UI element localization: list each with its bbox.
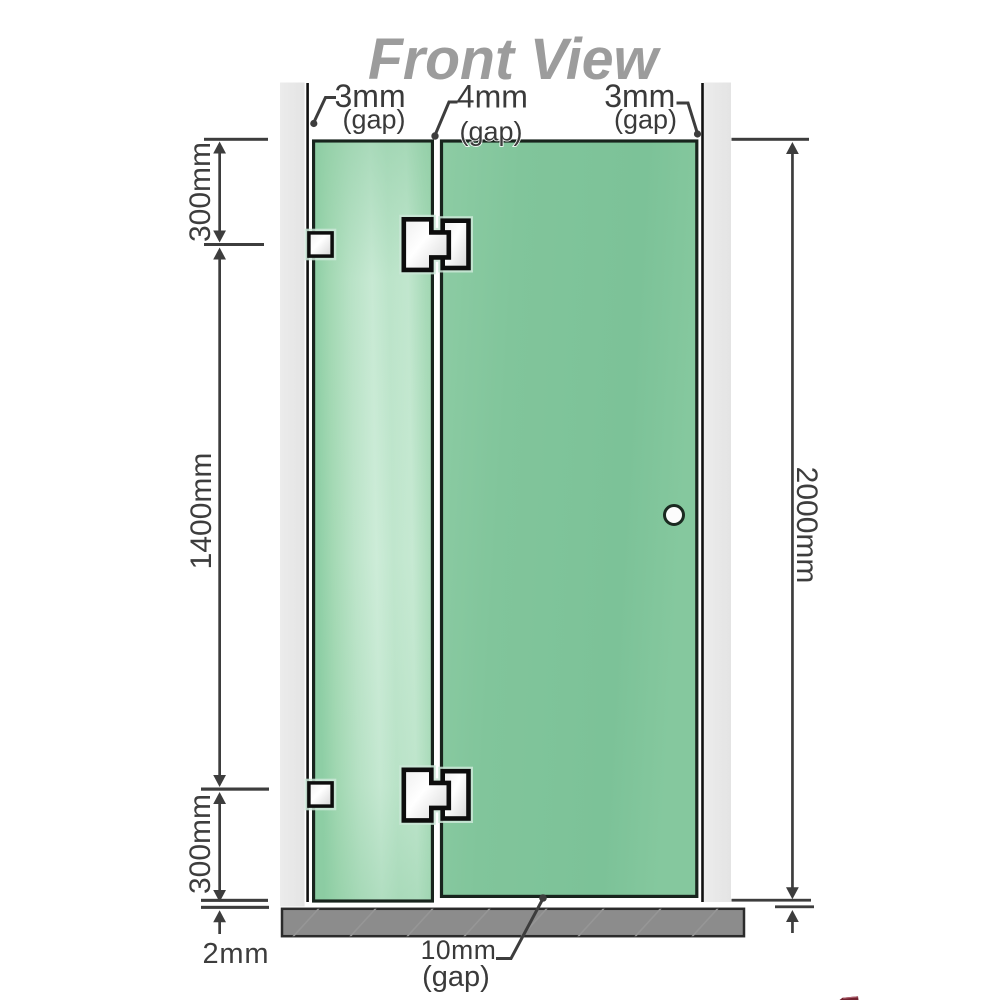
svg-text:(gap): (gap): [614, 105, 677, 135]
svg-text:2000mm: 2000mm: [790, 467, 823, 584]
svg-text:300mm: 300mm: [184, 794, 217, 894]
svg-text:(gap): (gap): [422, 961, 490, 993]
svg-text:2mm: 2mm: [203, 938, 270, 970]
svg-text:300mm: 300mm: [184, 142, 217, 242]
svg-text:(gap): (gap): [459, 117, 522, 147]
svg-text:(gap): (gap): [342, 105, 405, 135]
svg-text:4mm: 4mm: [457, 79, 528, 115]
svg-text:1400mm: 1400mm: [185, 453, 218, 570]
